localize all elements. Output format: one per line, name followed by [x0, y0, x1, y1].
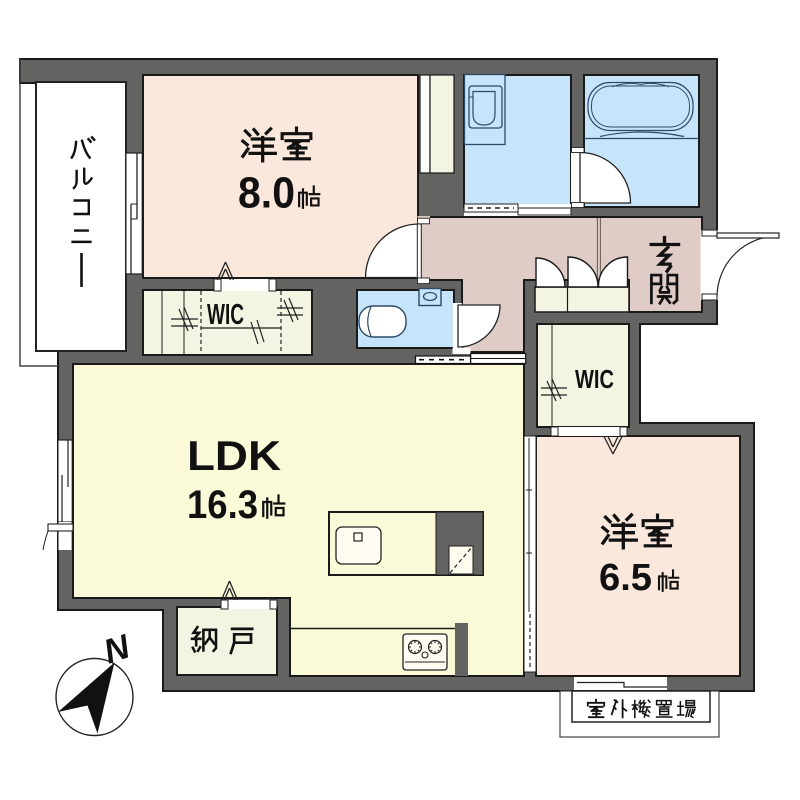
svg-text:WIC: WIC [575, 364, 614, 394]
svg-text:8.0: 8.0 [238, 169, 295, 218]
svg-text:LDK: LDK [187, 432, 281, 479]
svg-text:WIC: WIC [207, 299, 244, 331]
svg-text:16.3: 16.3 [187, 483, 258, 527]
svg-text:6.5: 6.5 [599, 557, 652, 599]
